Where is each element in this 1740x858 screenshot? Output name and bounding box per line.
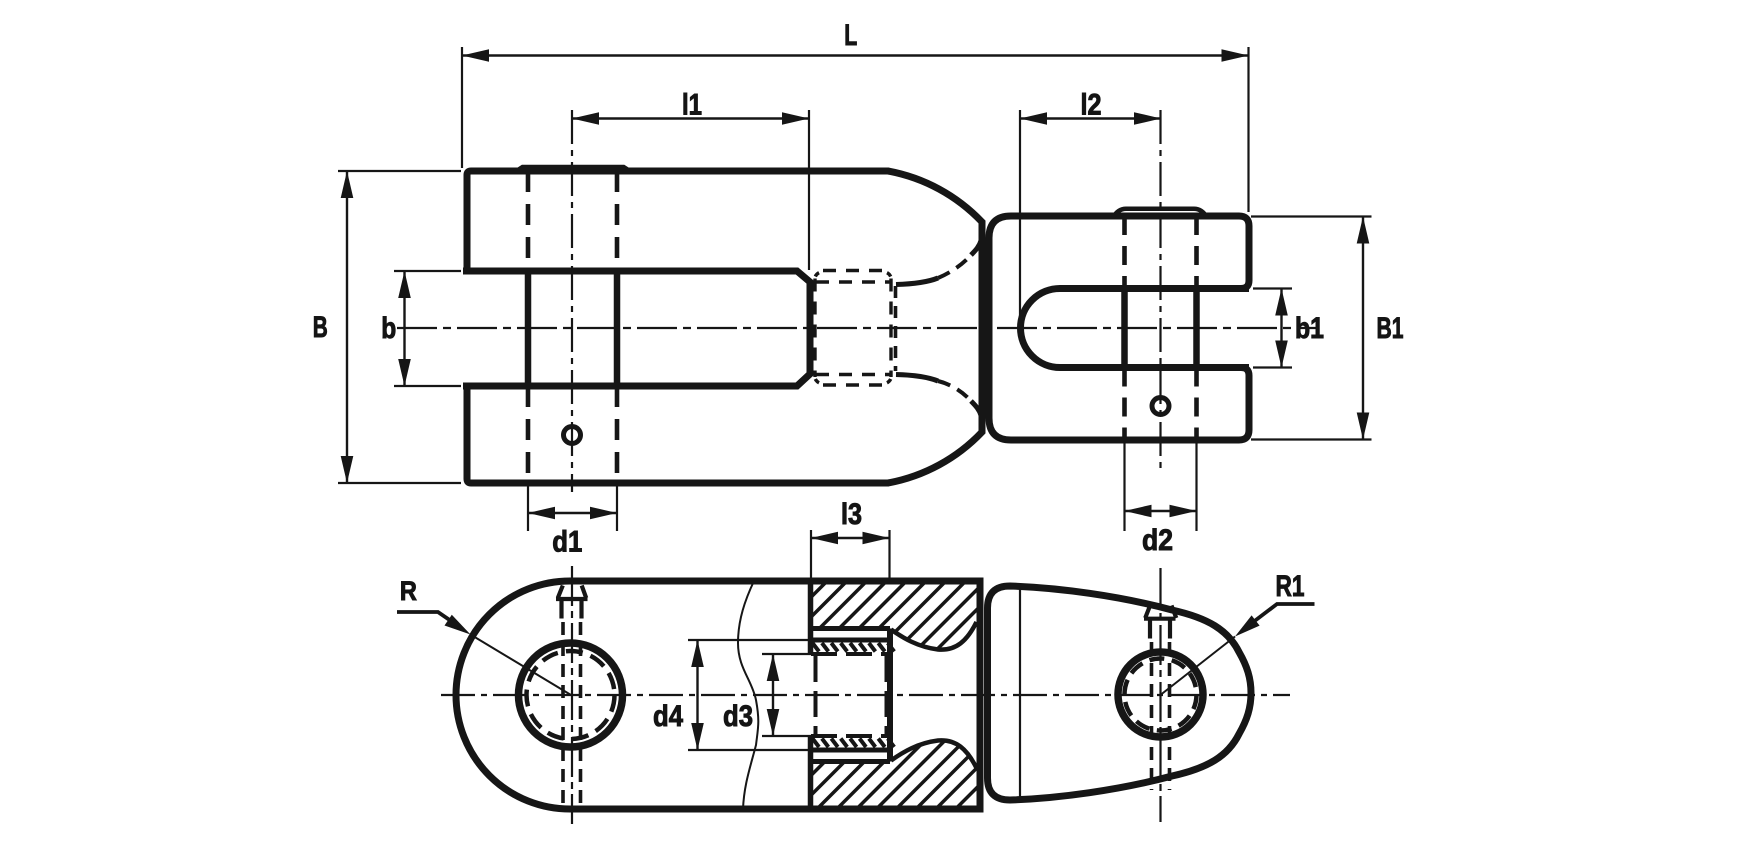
svg-text:B1: B1	[1377, 312, 1404, 345]
svg-text:d3: d3	[723, 700, 753, 733]
svg-text:R1: R1	[1276, 570, 1305, 603]
svg-text:B: B	[313, 311, 328, 344]
svg-text:l1: l1	[682, 89, 702, 122]
svg-text:d4: d4	[653, 700, 683, 733]
svg-text:R: R	[400, 576, 417, 606]
svg-text:b: b	[381, 312, 396, 345]
svg-text:l3: l3	[841, 498, 862, 531]
svg-text:d2: d2	[1142, 524, 1173, 557]
svg-text:l2: l2	[1081, 89, 1102, 122]
svg-text:L: L	[844, 19, 857, 52]
svg-text:d1: d1	[552, 526, 582, 559]
